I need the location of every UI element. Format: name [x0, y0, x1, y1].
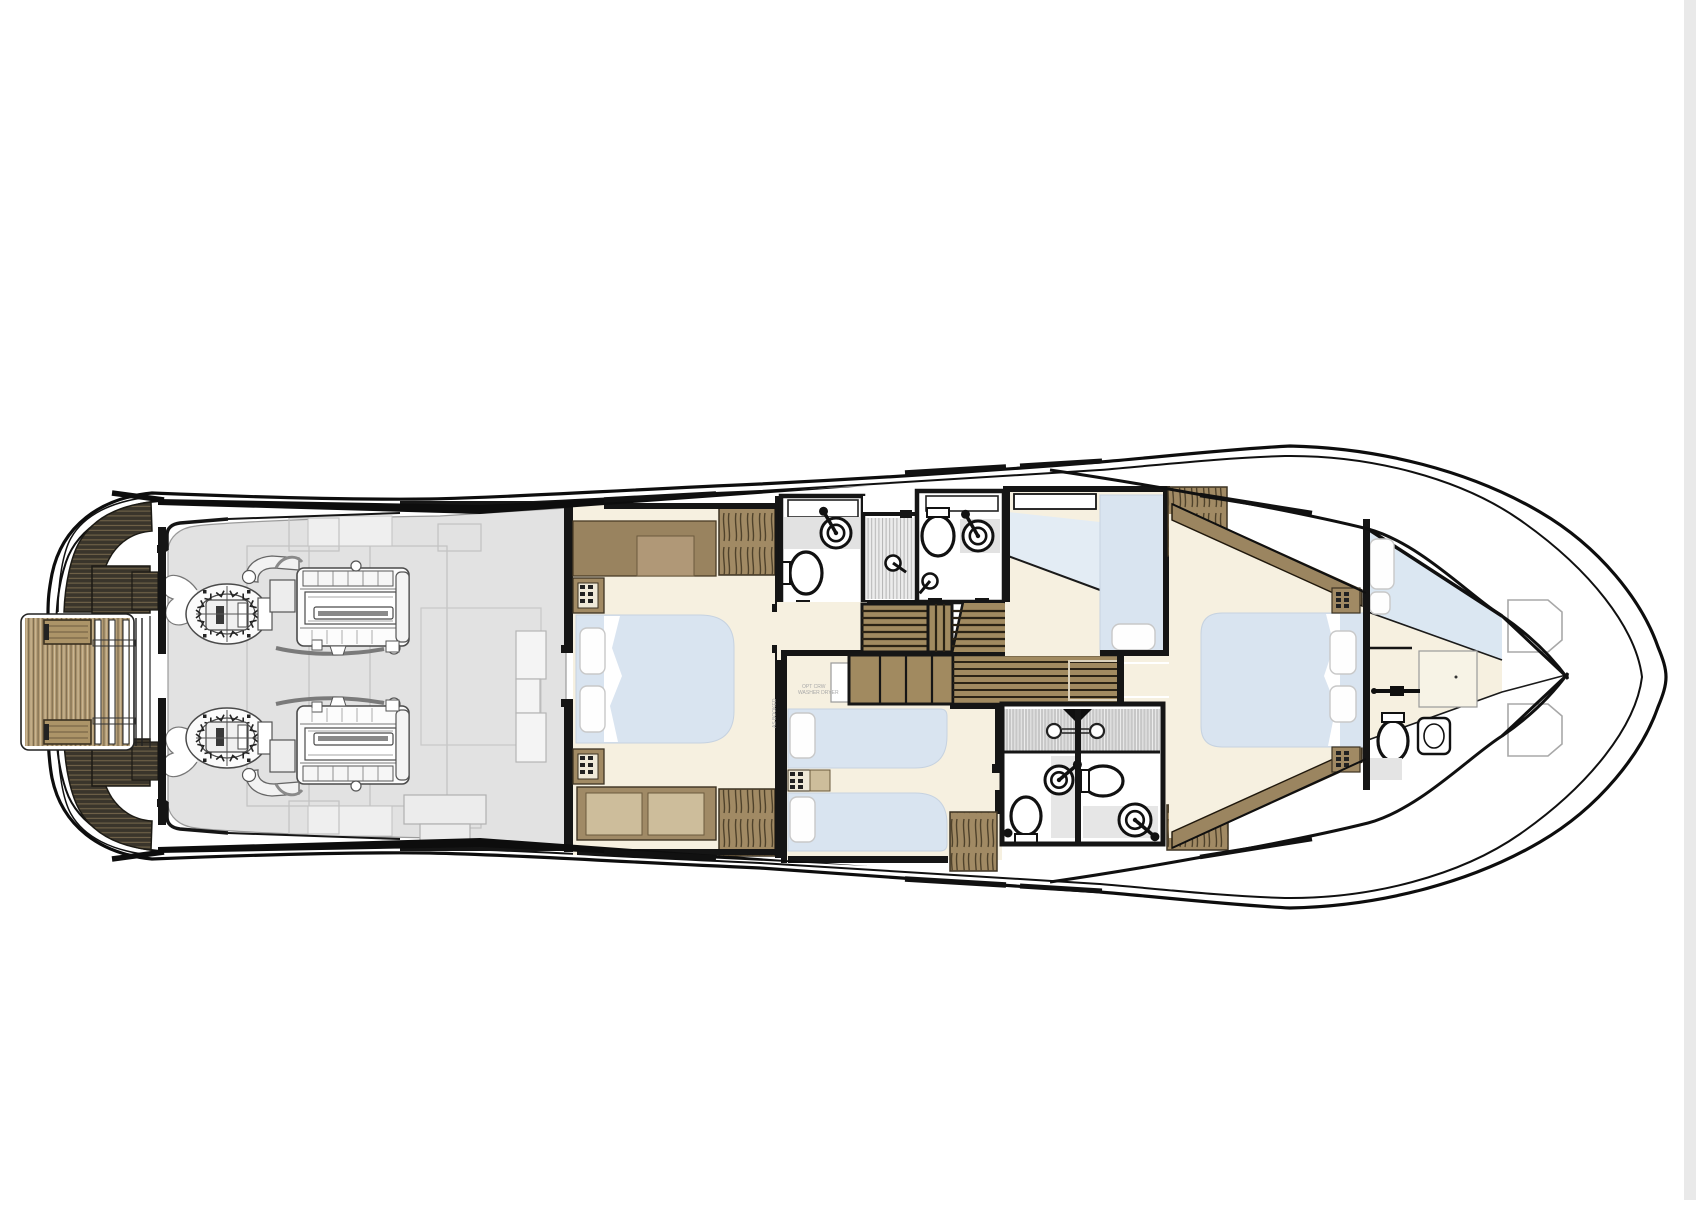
svg-text:WASHER DRYER: WASHER DRYER — [798, 690, 839, 696]
svg-text:AS BOOKED: AS BOOKED — [772, 698, 778, 728]
